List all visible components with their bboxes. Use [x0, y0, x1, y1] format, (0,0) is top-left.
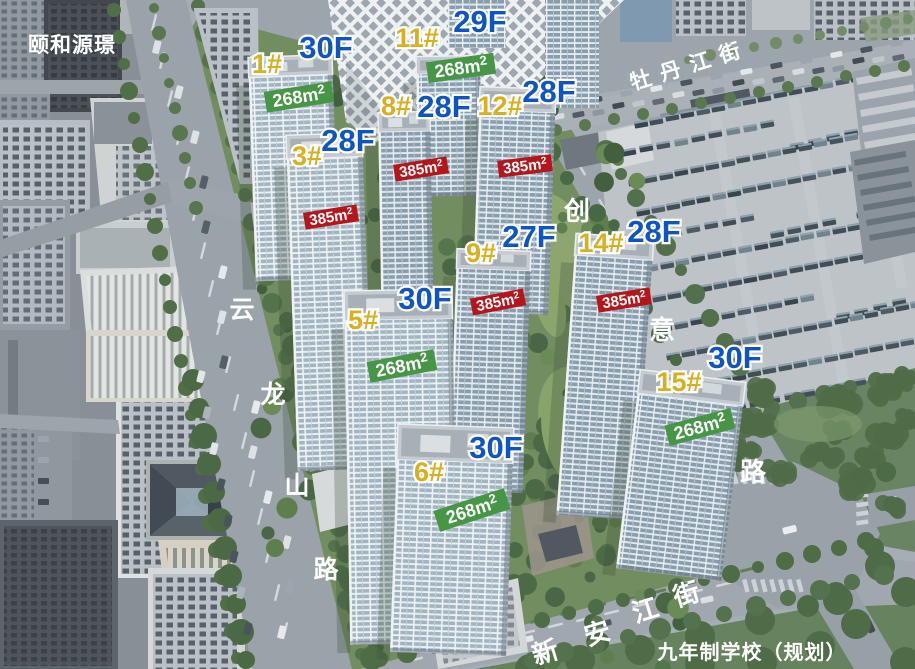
- svg-text:30F: 30F: [299, 30, 352, 65]
- svg-text:14#: 14#: [578, 228, 623, 258]
- svg-text:30F: 30F: [708, 340, 761, 375]
- svg-text:路: 路: [313, 556, 339, 584]
- svg-text:30F: 30F: [469, 430, 522, 465]
- svg-text:28F: 28F: [417, 89, 470, 124]
- svg-text:11#: 11#: [395, 23, 439, 53]
- svg-text:8#: 8#: [381, 91, 411, 121]
- svg-text:12#: 12#: [477, 91, 522, 121]
- svg-text:九年制学校（规划）: 九年制学校（规划）: [657, 640, 847, 664]
- svg-text:意: 意: [649, 315, 675, 345]
- svg-text:29F: 29F: [453, 4, 506, 39]
- svg-text:27F: 27F: [502, 219, 555, 254]
- svg-text:颐和源璟: 颐和源璟: [28, 34, 116, 57]
- svg-text:5#: 5#: [348, 305, 378, 335]
- svg-text:9#: 9#: [466, 238, 496, 268]
- svg-text:28F: 28F: [627, 214, 680, 249]
- svg-text:30F: 30F: [398, 281, 451, 316]
- svg-text:龙: 龙: [260, 381, 285, 409]
- svg-text:路: 路: [740, 457, 767, 487]
- svg-text:6#: 6#: [414, 457, 444, 487]
- svg-text:山: 山: [284, 472, 309, 500]
- svg-text:1#: 1#: [252, 49, 282, 79]
- svg-text:28F: 28F: [522, 74, 575, 109]
- svg-text:28F: 28F: [321, 123, 374, 158]
- svg-text:云: 云: [229, 296, 254, 324]
- svg-text:3#: 3#: [292, 141, 322, 171]
- svg-text:15#: 15#: [656, 367, 701, 397]
- svg-text:创: 创: [563, 196, 590, 226]
